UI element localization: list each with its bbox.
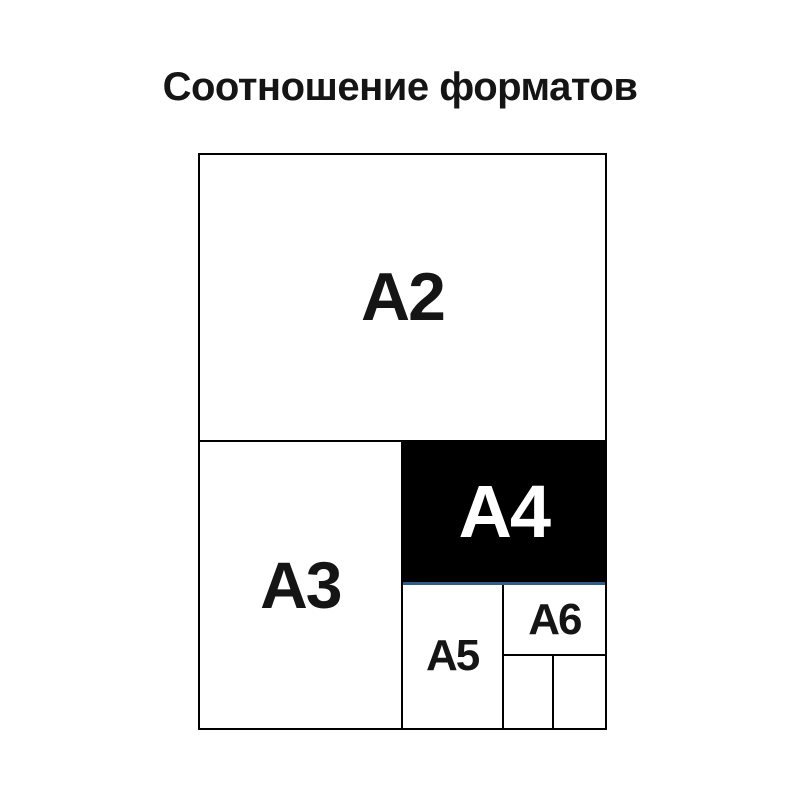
diagram-small-cells-row <box>504 656 605 728</box>
cell-a5: A5 <box>403 585 504 728</box>
paper-format-diagram: A2 A3 A4 A5 A6 <box>198 153 607 730</box>
diagram-bottom-right: A5 A6 <box>403 585 606 728</box>
label-a4: A4 <box>458 475 549 549</box>
label-a3: A3 <box>260 552 340 618</box>
cell-small-left <box>504 656 555 728</box>
cell-a6: A6 <box>504 585 605 657</box>
page-title: Соотношение форматов <box>0 62 800 112</box>
label-a2: A2 <box>361 263 444 331</box>
format-ratio-infographic: Соотношение форматов A2 A3 A4 A5 <box>0 0 800 800</box>
cell-a2: A2 <box>200 155 605 442</box>
cell-a4: A4 <box>403 442 606 585</box>
cell-a3: A3 <box>200 442 403 729</box>
diagram-a6-column: A6 <box>504 585 605 728</box>
label-a6: A6 <box>528 598 580 642</box>
diagram-bottom-half: A3 A4 A5 A6 <box>200 442 605 729</box>
diagram-right-column: A4 A5 A6 <box>403 442 606 729</box>
cell-small-right <box>554 656 605 728</box>
label-a5: A5 <box>426 634 478 678</box>
